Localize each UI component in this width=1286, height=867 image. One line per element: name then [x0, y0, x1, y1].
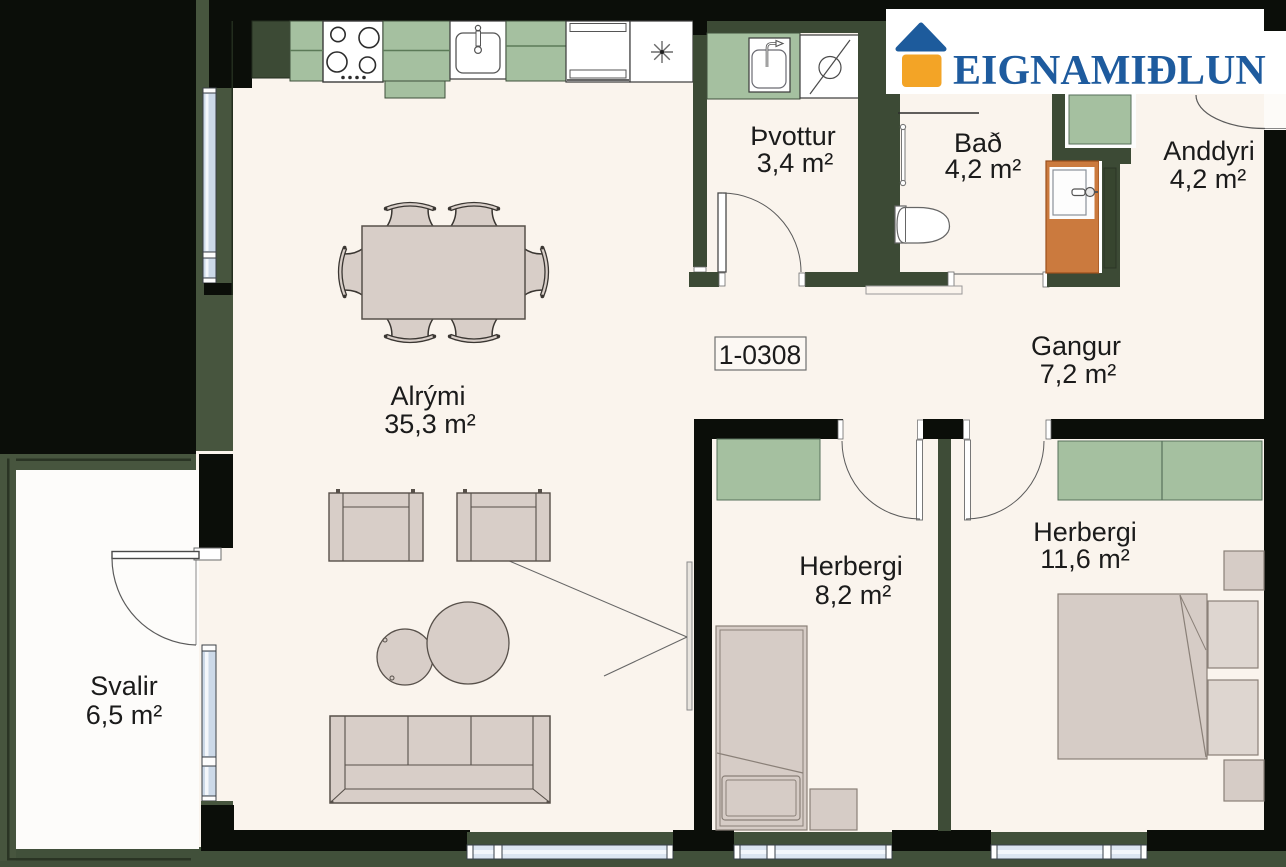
svg-text:35,3 m²: 35,3 m² [384, 409, 476, 439]
svg-text:11,6 m²: 11,6 m² [1040, 544, 1130, 574]
svg-text:8,2 m²: 8,2 m² [815, 580, 892, 610]
svg-text:4,2 m²: 4,2 m² [945, 154, 1022, 184]
svg-text:4,2 m²: 4,2 m² [1170, 164, 1247, 194]
svg-text:Gangur: Gangur [1031, 331, 1121, 361]
svg-text:Herbergi: Herbergi [1033, 517, 1137, 547]
svg-text:6,5 m²: 6,5 m² [86, 700, 163, 730]
svg-text:Anddyri: Anddyri [1163, 136, 1255, 166]
svg-text:EIGNAMIÐLUN: EIGNAMIÐLUN [953, 48, 1266, 94]
svg-text:7,2 m²: 7,2 m² [1040, 359, 1117, 389]
svg-text:Svalir: Svalir [90, 671, 158, 701]
svg-text:1-0308: 1-0308 [719, 340, 802, 370]
svg-text:3,4 m²: 3,4 m² [757, 148, 834, 178]
svg-text:Alrými: Alrými [391, 381, 466, 411]
svg-text:Herbergi: Herbergi [799, 551, 903, 581]
svg-text:Þvottur: Þvottur [750, 121, 836, 151]
